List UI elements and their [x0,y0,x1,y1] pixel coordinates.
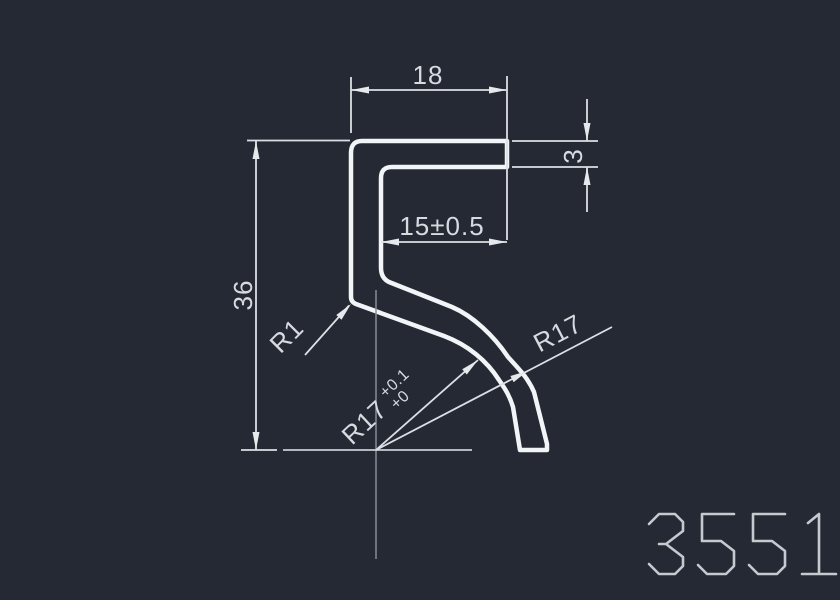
dim-text-tab-thickness: 3 [558,148,588,163]
dim-text-height: 36 [228,280,258,311]
dim-text-top-width: 18 [413,60,444,90]
cad-drawing-canvas: 18 3 15±0.5 36 [0,0,840,600]
cad-drawing: 18 3 15±0.5 36 [0,0,840,600]
dim-text-inner-width: 15±0.5 [399,211,484,241]
